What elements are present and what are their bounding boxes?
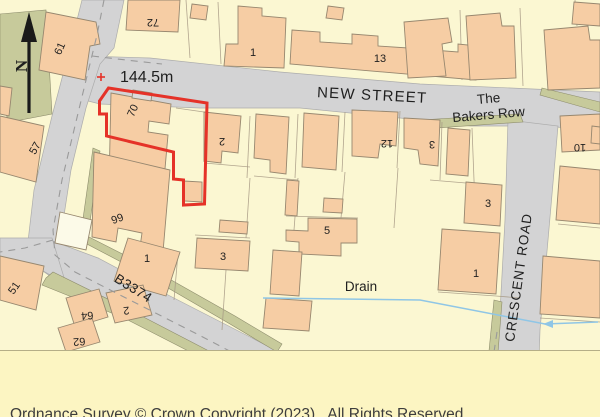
copyright-footer: Ordnance Survey © Crown Copyright (2023)…: [0, 350, 600, 417]
house-number-72: 72: [147, 16, 159, 28]
house-number-3-mid: 3: [220, 251, 226, 263]
house-number-5: 5: [324, 225, 330, 237]
house-number-1-east: 1: [473, 268, 479, 280]
house-number-2-south: 2: [219, 135, 225, 147]
building: [464, 182, 502, 226]
building: [591, 126, 600, 144]
building: [556, 166, 600, 224]
building: [446, 128, 470, 176]
house-number-3-east: 3: [485, 198, 491, 210]
house-number-64: 64: [81, 309, 94, 322]
building: [219, 220, 248, 234]
building: [190, 4, 208, 20]
os-location-plan: 144.5mNEW STREETTheBakers RowCRESCENT RO…: [0, 0, 600, 417]
drain-label: Drain: [345, 279, 377, 294]
building: [438, 229, 500, 294]
building: [285, 180, 299, 216]
building: [540, 256, 600, 318]
building: [572, 2, 600, 26]
house-number-13: 13: [374, 53, 386, 65]
house-number-62: 62: [73, 335, 86, 348]
building: [323, 198, 343, 213]
building: [184, 181, 202, 202]
house-number-1-north: 1: [250, 47, 256, 59]
building: [326, 6, 344, 20]
house-number-12: 12: [381, 137, 393, 149]
house-number-1-mid: 1: [144, 253, 150, 265]
house-number-10: 10: [574, 141, 586, 153]
building: [263, 298, 312, 331]
spot-height-label: 144.5m: [120, 69, 173, 86]
footer-line1: Ordnance Survey © Crown Copyright (2023)…: [10, 404, 600, 417]
house-number-3-south: 3: [429, 138, 435, 150]
building: [302, 113, 339, 170]
building: [0, 256, 44, 310]
north-letter: N: [12, 59, 31, 72]
house-number-2-west: 2: [123, 304, 130, 317]
street-label-the: The: [476, 90, 500, 107]
building: [270, 250, 302, 296]
